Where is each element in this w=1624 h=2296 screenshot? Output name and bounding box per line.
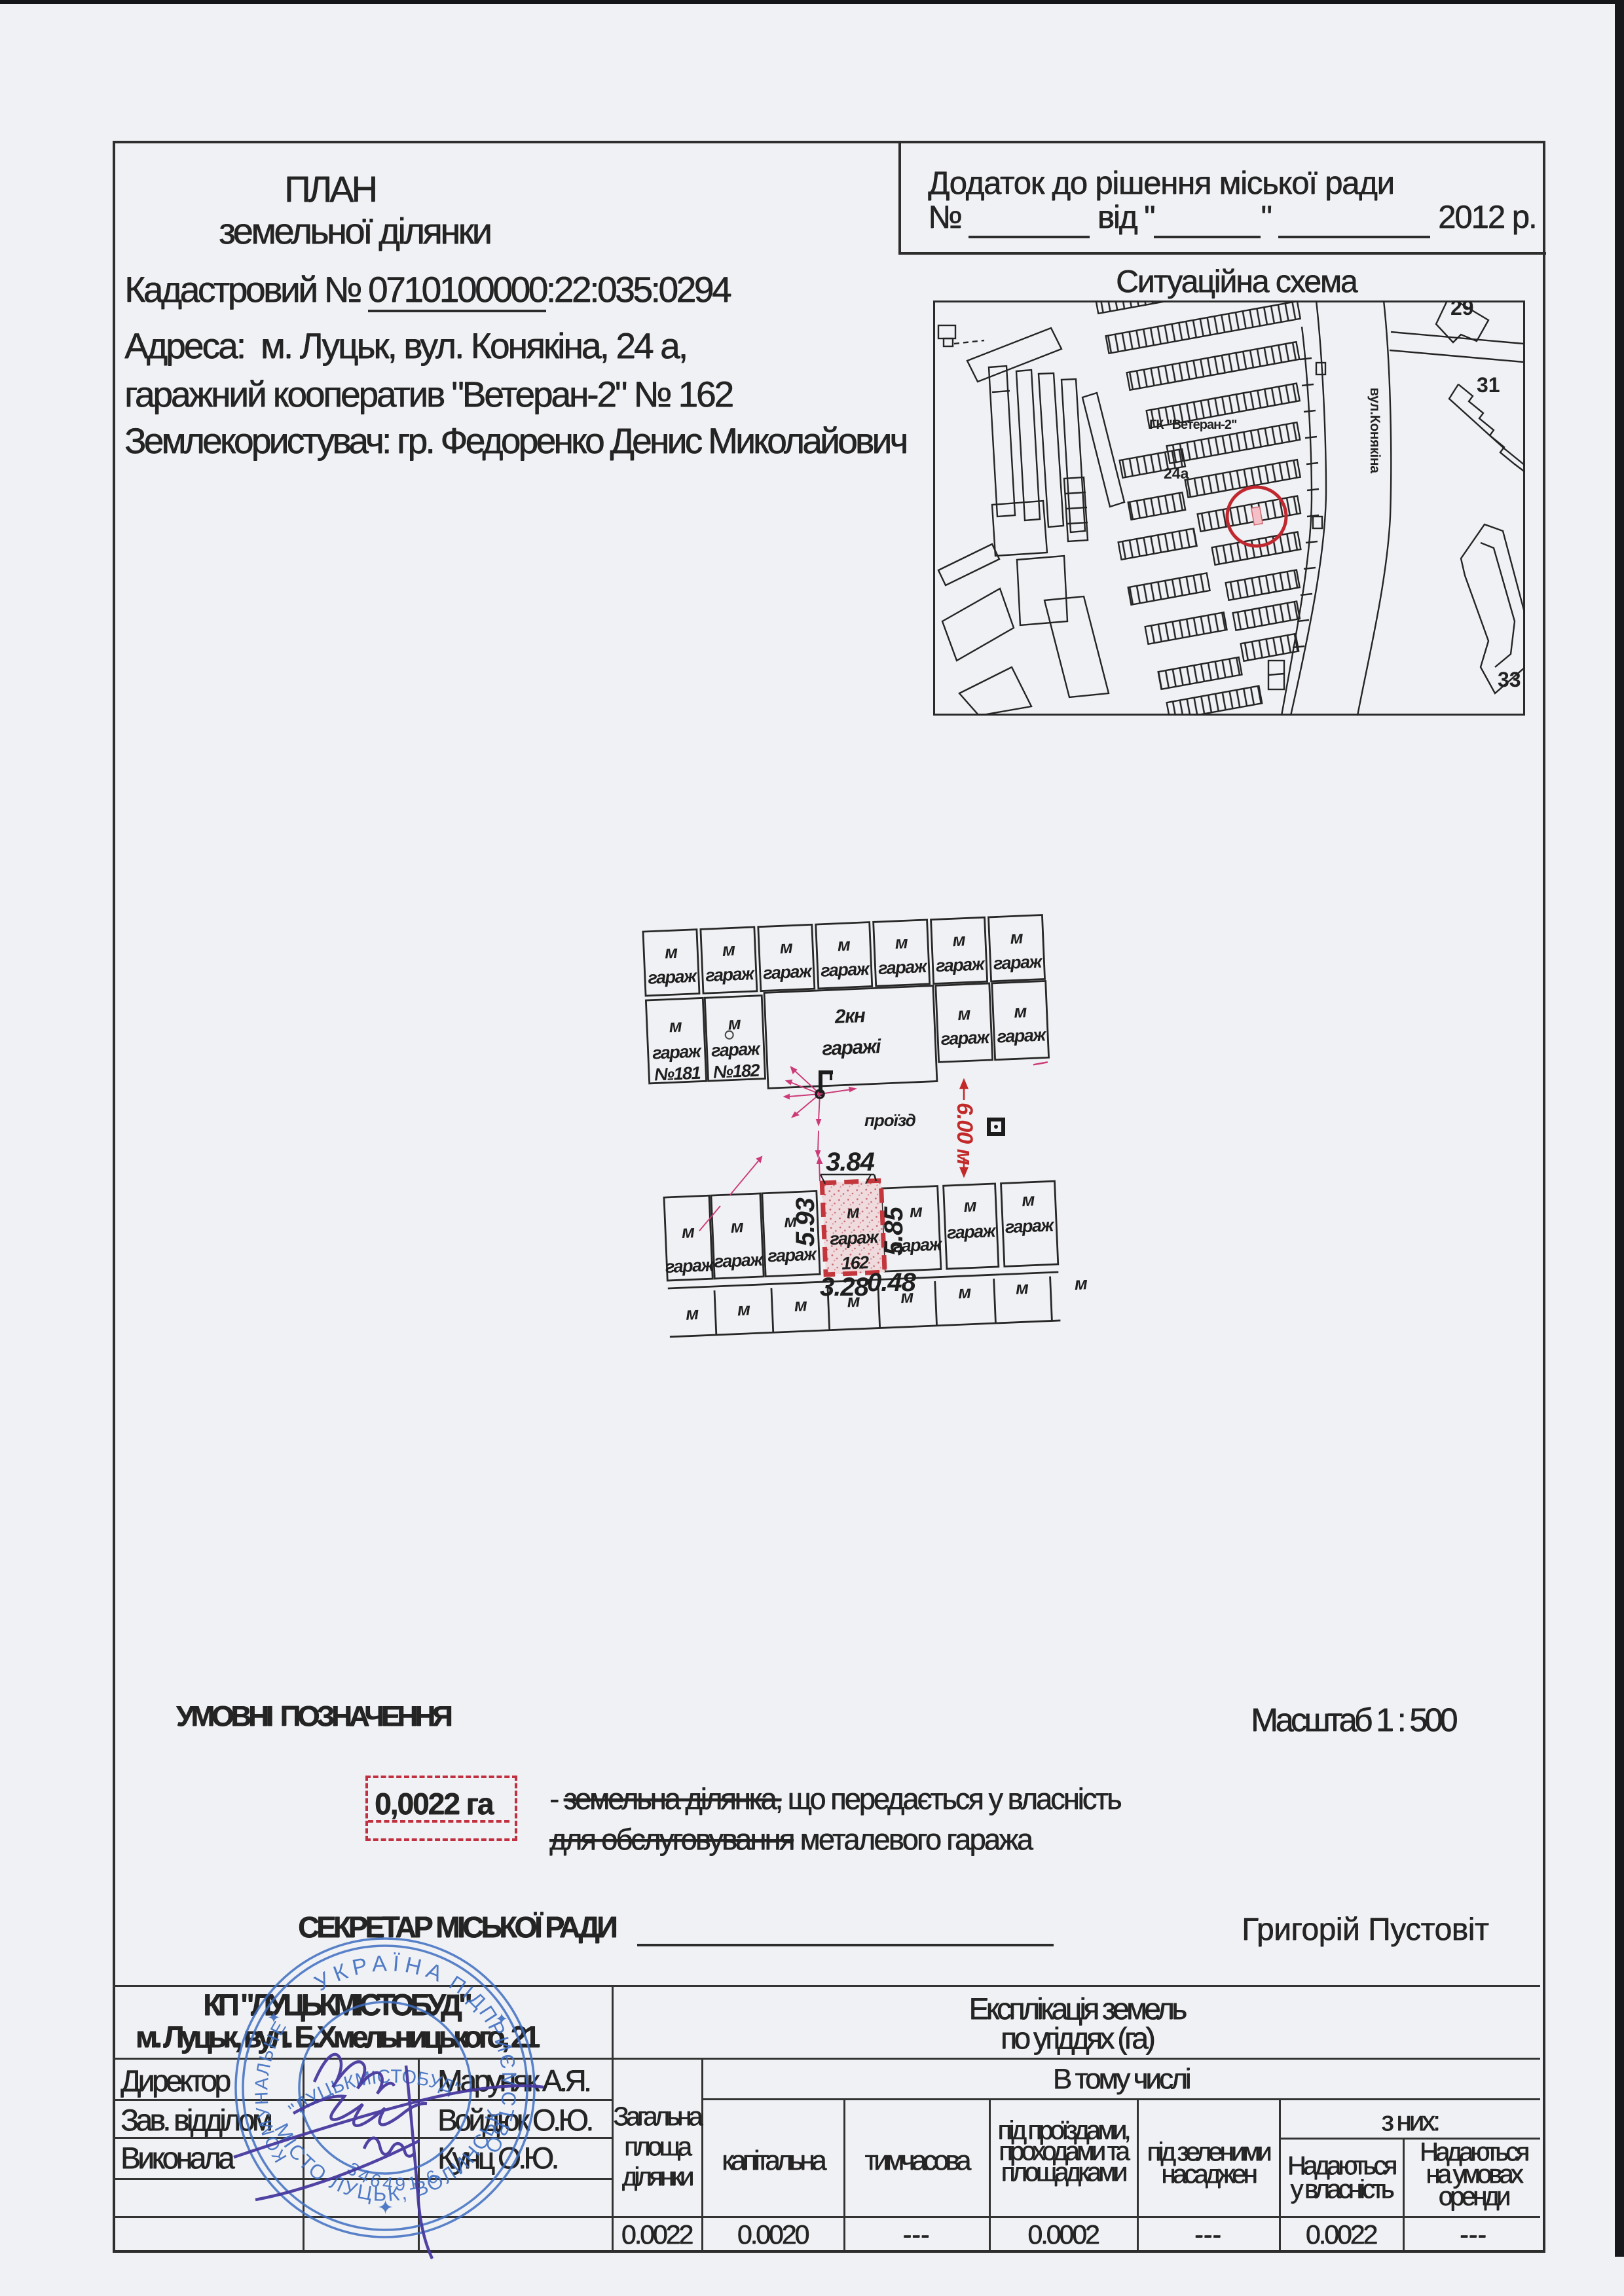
svg-text:м: м [895, 932, 908, 953]
svg-text:гараж: гараж [767, 1244, 819, 1266]
svg-text:3.84: 3.84 [826, 1148, 875, 1176]
svg-text:ГК "Ветеран-2": ГК "Ветеран-2" [1149, 418, 1237, 432]
svg-text:гараж: гараж [935, 954, 986, 975]
svg-text:гараж: гараж [997, 1025, 1048, 1046]
svg-text:5.85: 5.85 [879, 1206, 908, 1256]
svg-text:м: м [957, 1004, 971, 1024]
svg-text:гараж: гараж [705, 964, 756, 985]
svg-text:м: м [1014, 1002, 1027, 1022]
svg-text:№181: №181 [654, 1063, 701, 1085]
svg-text:м: м [722, 939, 735, 960]
svg-text:м: м [737, 1300, 750, 1320]
svg-text:162: 162 [841, 1252, 870, 1273]
svg-text:гараж: гараж [763, 961, 814, 983]
svg-text:33: 33 [1498, 668, 1521, 691]
svg-text:24а: 24а [1164, 465, 1189, 482]
svg-text:м: м [837, 935, 851, 955]
svg-text:гараж: гараж [947, 1221, 998, 1243]
svg-text:3.28: 3.28 [820, 1273, 870, 1302]
svg-text:м: м [1022, 1190, 1035, 1210]
svg-text:м: м [963, 1195, 977, 1216]
svg-text:м: м [794, 1295, 807, 1315]
svg-text:гараж: гараж [940, 1027, 991, 1049]
svg-text:м: м [779, 938, 793, 958]
svg-text:гараж: гараж [993, 952, 1044, 974]
svg-text:УКРАЇНА: УКРАЇНА [310, 1951, 451, 1996]
svg-text:м: м [686, 1303, 699, 1324]
svg-text:гаражі: гаражі [822, 1036, 882, 1060]
svg-text:м: м [664, 942, 678, 962]
svg-text:м: м [669, 1016, 682, 1036]
svg-text:29: 29 [1450, 301, 1474, 319]
svg-text:6.00 м: 6.00 м [952, 1102, 977, 1165]
svg-text:м: м [958, 1283, 972, 1303]
svg-text:м: м [952, 930, 966, 950]
svg-text:гараж: гараж [652, 1041, 703, 1063]
svg-text:31: 31 [1477, 373, 1500, 397]
svg-text:м: м [1015, 1278, 1029, 1298]
svg-text:м: м [909, 1201, 923, 1222]
svg-text:м: м [1074, 1273, 1088, 1294]
svg-text:✦: ✦ [377, 2197, 394, 2219]
svg-text:5.93: 5.93 [791, 1197, 820, 1247]
svg-text:✦: ✦ [495, 2011, 508, 2028]
svg-text:м: м [846, 1202, 860, 1222]
svg-text:2кн: 2кн [834, 1005, 866, 1028]
svg-text:гараж: гараж [711, 1039, 762, 1061]
svg-text:гараж: гараж [665, 1255, 716, 1277]
svg-text:гараж: гараж [821, 959, 872, 981]
svg-text:№182: №182 [712, 1061, 760, 1082]
svg-text:вул.Конякіна: вул.Конякіна [1367, 388, 1382, 473]
svg-text:0.48: 0.48 [867, 1268, 917, 1297]
svg-text:гараж: гараж [648, 966, 699, 988]
svg-text:м: м [730, 1216, 744, 1237]
svg-text:гараж: гараж [878, 957, 929, 978]
svg-text:м: м [681, 1222, 695, 1242]
svg-text:✦: ✦ [267, 2009, 280, 2027]
svg-text:гараж: гараж [1005, 1215, 1056, 1237]
svg-text:гараж: гараж [714, 1250, 765, 1271]
svg-text:м: м [1010, 928, 1024, 948]
svg-text:гараж: гараж [830, 1227, 881, 1248]
svg-text:проїзд: проїзд [864, 1110, 916, 1130]
